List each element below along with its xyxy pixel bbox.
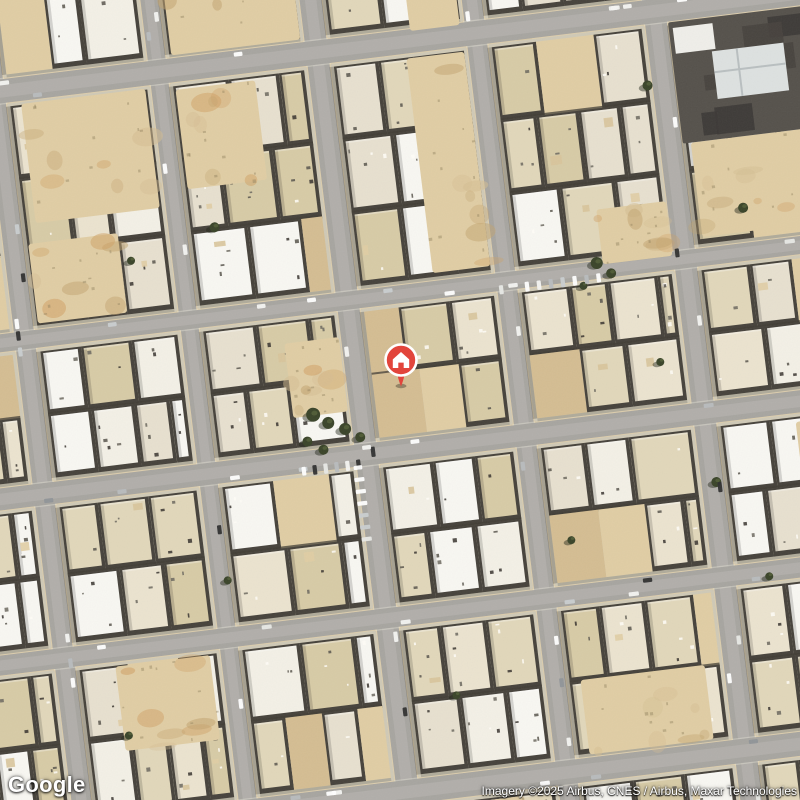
- location-marker[interactable]: [366, 327, 436, 397]
- map-viewport[interactable]: Google Imagery ©2025 Airbus, CNES / Airb…: [0, 0, 800, 800]
- map-attribution: Imagery ©2025 Airbus, CNES / Airbus, Max…: [482, 784, 797, 798]
- satellite-imagery: [0, 0, 800, 800]
- google-logo[interactable]: Google: [8, 772, 86, 798]
